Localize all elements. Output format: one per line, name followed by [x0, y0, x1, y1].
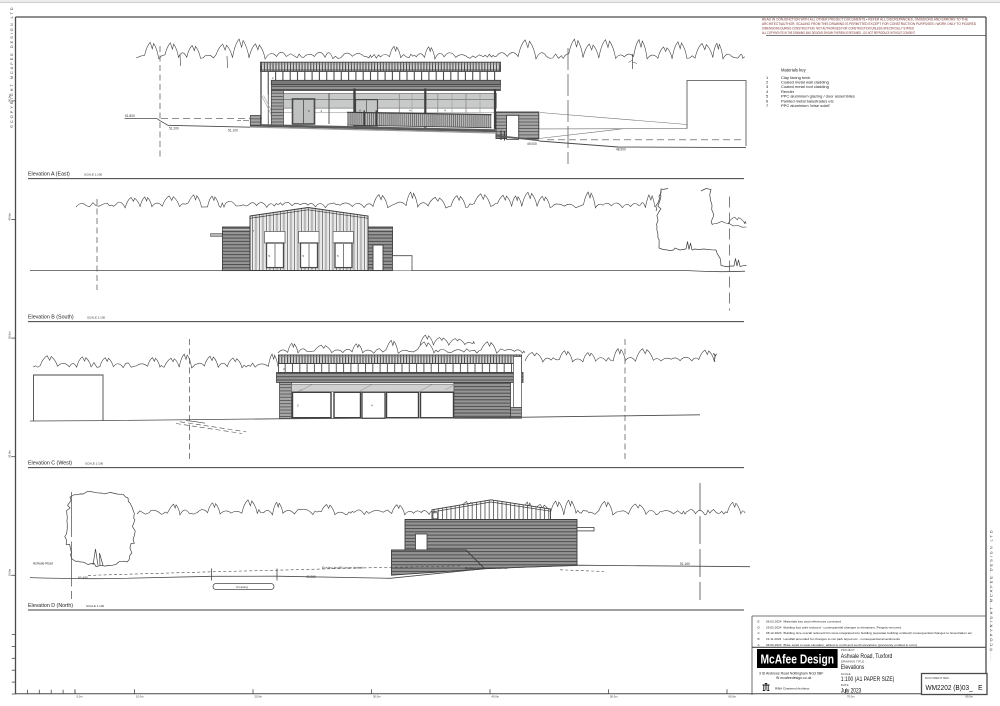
- svg-text:5.0m: 5.0m: [77, 695, 84, 699]
- svg-text:Elevations: Elevations: [841, 665, 865, 671]
- svg-text:PPC aluminium 'brise soleil': PPC aluminium 'brise soleil': [781, 103, 830, 108]
- svg-text:49.000: 49.000: [527, 142, 537, 146]
- svg-text:30.0m: 30.0m: [8, 331, 12, 339]
- svg-text:51.200: 51.200: [169, 127, 179, 131]
- svg-text:05.12.2023: 05.12.2023: [766, 631, 782, 635]
- svg-text:Ashvale Road: Ashvale Road: [33, 562, 53, 566]
- svg-text:50.0m: 50.0m: [8, 94, 12, 102]
- svg-text:DRAWING TITLE: DRAWING TITLE: [841, 660, 864, 664]
- svg-text:60.0m: 60.0m: [729, 695, 737, 699]
- svg-text:McAfee Design: McAfee Design: [761, 653, 835, 667]
- svg-text:Building foot print reduced -: Building foot print reduced - consequent…: [784, 625, 902, 629]
- svg-text:DATE: DATE: [841, 683, 849, 687]
- svg-text:DIMENSIONS DURING CONSTRUCTION: DIMENSIONS DURING CONSTRUCTION. NOT AUTH…: [762, 27, 914, 31]
- svg-text:70.0m: 70.0m: [847, 695, 855, 699]
- svg-text:51.100: 51.100: [228, 128, 238, 132]
- svg-text:Elevation D (North): Elevation D (North): [28, 603, 73, 609]
- svg-text:51.160: 51.160: [680, 562, 690, 566]
- svg-text:SCALE 1:100: SCALE 1:100: [84, 172, 103, 176]
- svg-text:40.0m: 40.0m: [492, 695, 500, 699]
- svg-text:W mcafeedesign.co.uk: W mcafeedesign.co.uk: [776, 676, 812, 680]
- svg-text:30.0m: 30.0m: [373, 695, 381, 699]
- svg-text:Materials key: Materials key: [781, 68, 807, 73]
- svg-text:29.02.2024: 29.02.2024: [766, 625, 782, 629]
- svg-text:Elevation B (South): Elevation B (South): [28, 315, 74, 321]
- svg-text:SCALE: SCALE: [841, 672, 851, 676]
- svg-text:B: B: [758, 637, 760, 641]
- svg-text:48.500: 48.500: [616, 147, 626, 151]
- svg-text:20.0m: 20.0m: [8, 449, 12, 457]
- svg-text:Elevation C (West): Elevation C (West): [28, 461, 72, 467]
- svg-text:06.09.2023: 06.09.2023: [766, 643, 782, 647]
- svg-text:Brise soleil to west elevation: Brise soleil to west elevation, added to…: [784, 643, 918, 647]
- svg-text:10.0m: 10.0m: [8, 568, 12, 576]
- svg-text:SCALE 1:100: SCALE 1:100: [85, 461, 104, 465]
- svg-text:40.0m: 40.0m: [8, 212, 12, 220]
- svg-text:SCALE 1:100: SCALE 1:100: [86, 604, 105, 608]
- svg-text:20.0m: 20.0m: [255, 695, 263, 699]
- svg-text:PROJECT: PROJECT: [841, 648, 855, 652]
- svg-text:SCALE 1:100: SCALE 1:100: [87, 315, 106, 319]
- svg-text:ARCHITECT/AUTHOR. SCALING FROM: ARCHITECT/AUTHOR. SCALING FROM THIS DRAW…: [762, 22, 976, 26]
- svg-text:E: E: [758, 619, 760, 623]
- svg-text:Landfall amended for changes t: Landfall amended for changes to car park…: [784, 637, 901, 641]
- svg-text:06.03.2024: 06.03.2024: [766, 619, 782, 623]
- svg-text:Materials key and references c: Materials key and references corrected: [784, 619, 842, 623]
- svg-text:WM2202 (B)03_ E: WM2202 (B)03_ E: [926, 683, 983, 692]
- svg-text:Building size overall reduced/: Building size overall reduced/ bin store…: [784, 631, 973, 635]
- svg-text:READ IN CONJUNCTION WITH ALL O: READ IN CONJUNCTION WITH ALL OTHER PROJE…: [762, 18, 969, 22]
- svg-text:10.0m: 10.0m: [136, 695, 144, 699]
- svg-text:Building ground shown dashed: Building ground shown dashed: [465, 566, 508, 570]
- svg-text:Crossing: Crossing: [236, 585, 248, 589]
- svg-text:©COPYRIGHT MCAFEE DESIGN LTD: ©COPYRIGHT MCAFEE DESIGN LTD: [9, 6, 14, 128]
- svg-text:©COPYRIGHT MCAFEE DESIGN LTD: ©COPYRIGHT MCAFEE DESIGN LTD: [989, 529, 994, 651]
- svg-text:Existing landfill shown dashed: Existing landfill shown dashed: [322, 566, 364, 570]
- svg-text:50.450: 50.450: [78, 576, 88, 580]
- svg-text:51.800: 51.800: [125, 114, 135, 118]
- svg-text:50.0m: 50.0m: [610, 695, 618, 699]
- svg-text:21.11.2023: 21.11.2023: [766, 637, 782, 641]
- svg-text:3 St Andrews Road Nottingham: 3 St Andrews Road Nottingham NG3 5BF: [759, 671, 823, 675]
- svg-text:ALL COPYRIGHTS IN THE DRAWING: ALL COPYRIGHTS IN THE DRAWING AND DESIGN…: [762, 31, 916, 35]
- svg-text:Elevation A (East): Elevation A (East): [28, 172, 70, 178]
- svg-text:RIBA Chartered Architect: RIBA Chartered Architect: [775, 687, 810, 691]
- svg-text:49.260: 49.260: [306, 575, 316, 579]
- svg-text:1:100 (A1 PAPER SIZE): 1:100 (A1 PAPER SIZE): [841, 677, 895, 683]
- svg-text:July 2023: July 2023: [841, 688, 862, 694]
- svg-text:DOCUMENT REF.: DOCUMENT REF.: [925, 676, 950, 680]
